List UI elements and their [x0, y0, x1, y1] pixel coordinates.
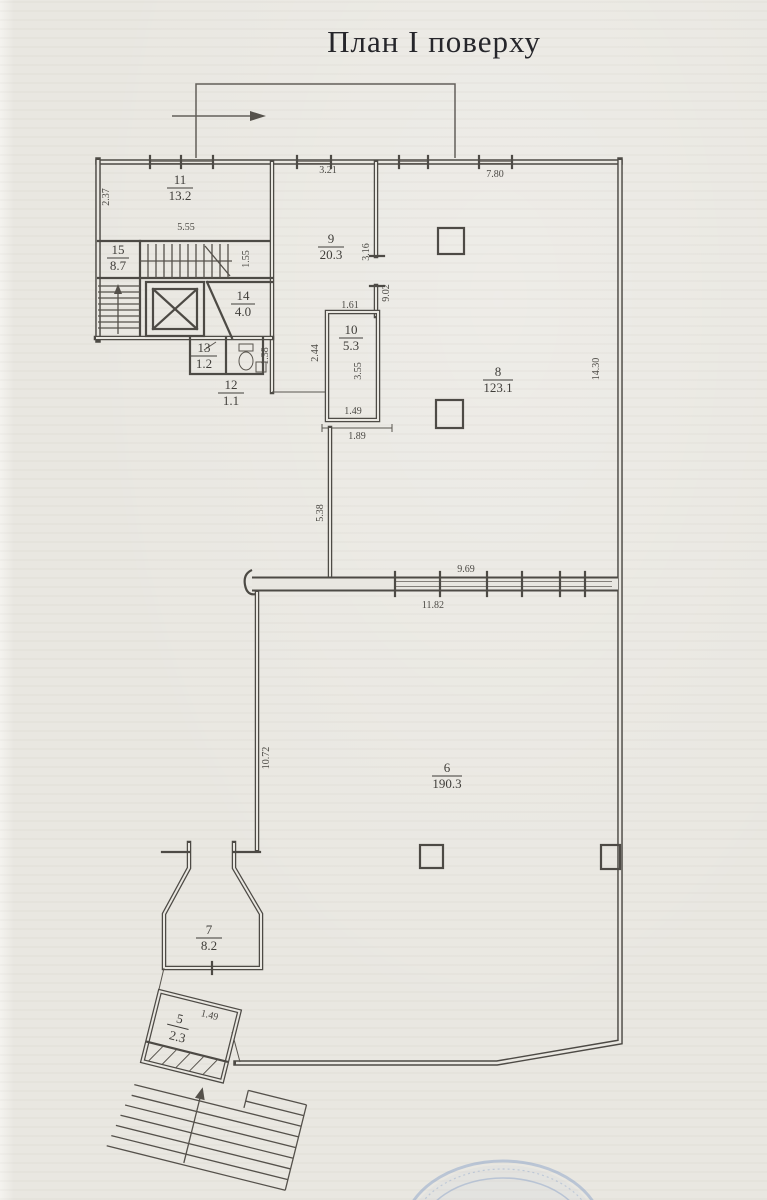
dim-room10-inner: 3.55 [353, 362, 364, 380]
elevator-shaft-icon [146, 282, 204, 336]
dim-room9-right: 3.16 [361, 243, 372, 261]
dim-corridor-left: 5.38 [315, 504, 326, 522]
entrance-arrow-icon [172, 111, 266, 121]
dim-room5-top: 1.49 [200, 1008, 220, 1023]
room5-walls [142, 991, 239, 1081]
plan-title: План І поверху [327, 24, 541, 59]
dim-room10-left: 2.44 [310, 344, 321, 362]
room-9-number: 9 [328, 231, 335, 246]
dim-room10-top: 1.61 [341, 300, 359, 311]
room-label-9: 9 20.3 [318, 231, 344, 262]
room-label-10: 10 5.3 [339, 322, 363, 353]
room-15-area: 8.7 [110, 258, 127, 273]
dimension-texts: 2.37 5.55 3.21 7.80 1.55 3.16 9.02 1.61 … [101, 165, 602, 769]
room-label-8: 8 123.1 [483, 364, 513, 395]
room-6-number: 6 [444, 760, 451, 775]
room-label-11: 11 13.2 [167, 172, 193, 203]
dim-room9-top: 3.21 [319, 165, 337, 176]
room-12-number: 12 [225, 377, 238, 392]
dim-stair-right: 1.55 [241, 250, 252, 268]
room-label-14: 14 4.0 [231, 288, 255, 319]
room-15-number: 15 [112, 242, 125, 257]
room-10-number: 10 [345, 322, 358, 337]
dim-room8-right: 14.30 [591, 358, 602, 381]
room-label-12: 12 1.1 [218, 377, 244, 408]
room-label-5: 5 2.3 1.49 [163, 1001, 219, 1052]
room-label-6: 6 190.3 [432, 760, 462, 791]
floor-plan-drawing: План І поверху [0, 0, 767, 1200]
room-13-number: 13 [198, 340, 211, 355]
external-stairs [107, 1060, 307, 1190]
dim-room10-bottom: 1.49 [344, 406, 362, 417]
room-7-number: 7 [206, 922, 213, 937]
entrance-canopy [196, 84, 455, 158]
outer-walls [98, 160, 620, 1063]
stamp-icon [403, 1161, 603, 1200]
right-wall-pilaster [601, 845, 620, 869]
room-12-area: 1.1 [223, 393, 239, 408]
room-14-number: 14 [237, 288, 251, 303]
dim-midwall-upper: 9.69 [457, 564, 475, 575]
room-6-area: 190.3 [432, 776, 461, 791]
dim-room11-bottom: 5.55 [177, 222, 195, 233]
room-5-area: 2.3 [168, 1027, 187, 1045]
dim-room10-below: 1.89 [348, 431, 366, 442]
room-7-area: 8.2 [201, 938, 217, 953]
room-10-area: 5.3 [343, 338, 359, 353]
room-11-area: 13.2 [169, 188, 192, 203]
dim-room8-left: 9.02 [381, 284, 392, 302]
scanned-floor-plan-page: План І поверху [0, 0, 767, 1200]
staircase-upper [140, 244, 232, 278]
room-8-area: 123.1 [483, 380, 512, 395]
room-8-number: 8 [495, 364, 502, 379]
room-label-7: 7 8.2 [196, 922, 222, 953]
dim-room8-top: 7.80 [486, 169, 504, 180]
room-11-number: 11 [174, 172, 187, 187]
room-label-13: 13 1.2 [191, 340, 217, 371]
structural-columns [420, 228, 464, 868]
room-14-area: 4.0 [235, 304, 251, 319]
room-label-15: 15 8.7 [107, 242, 129, 273]
middle-wall [245, 570, 618, 596]
dim-midwall-lower: 11.82 [422, 600, 444, 611]
staircase-lower-left [98, 284, 140, 334]
dim-room6-left: 10.72 [261, 747, 272, 770]
room-5-number: 5 [175, 1010, 185, 1026]
room-9-area: 20.3 [320, 247, 343, 262]
room-13-area: 1.2 [196, 356, 212, 371]
dim-room12-right: 1.38 [260, 347, 271, 365]
dim-room11-left: 2.37 [101, 188, 112, 206]
toilet-icon [204, 342, 266, 372]
